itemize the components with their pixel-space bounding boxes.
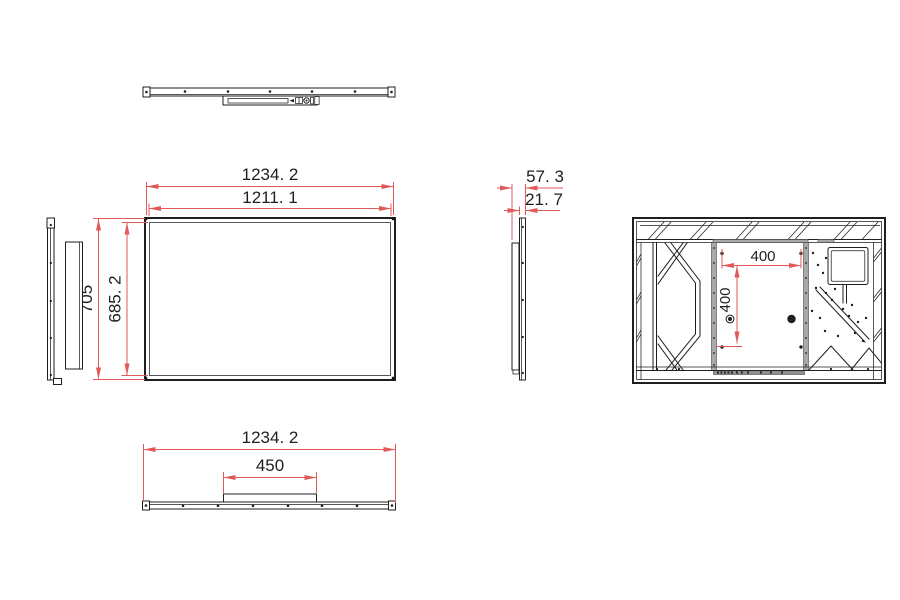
side-foot [513, 370, 519, 374]
front-height-dimensions: 705 685. 2 [77, 219, 148, 380]
handle-screw-right [787, 315, 795, 323]
bottom-bracket [224, 494, 317, 502]
left-side-view [47, 218, 83, 385]
rear-view: 400 400 [633, 218, 885, 383]
dim-vesa-height: 400 [717, 287, 734, 312]
dim-vesa-width: 400 [750, 248, 775, 265]
drawing-canvas: 1234. 2 1211. 1 705 685. 2 [0, 0, 900, 600]
dim-side-panel-thickness: 21. 7 [525, 190, 563, 209]
dim-side-depth-total: 57. 3 [526, 167, 564, 186]
dim-bottom-bracket-width: 450 [256, 456, 284, 475]
bottom-view [143, 494, 396, 510]
bottom-connector-strip [714, 371, 805, 375]
front-width-dimensions: 1234. 2 1211. 1 [147, 165, 394, 216]
dim-front-width-inner: 1211. 1 [242, 188, 297, 207]
right-side-view [512, 218, 526, 380]
power-box [828, 248, 868, 285]
bottom-dimensions: 1234. 2 450 [144, 428, 396, 503]
left-side-back-box [66, 242, 83, 369]
technical-drawing-page: 1234. 2 1211. 1 705 685. 2 [0, 0, 900, 600]
dim-front-width-outer: 1234. 2 [242, 165, 299, 184]
side-depth-dimensions: 57. 3 21. 7 [497, 167, 564, 240]
dim-bottom-width: 1234. 2 [242, 428, 299, 447]
front-panel-outline [145, 218, 395, 380]
side-back-box [512, 243, 519, 370]
handle-screw-left [726, 315, 734, 323]
left-side-foot [54, 379, 62, 385]
top-view [143, 87, 395, 105]
front-view [144, 217, 395, 380]
top-connector-recess [228, 99, 288, 104]
dim-front-height-inner: 685. 2 [106, 275, 125, 322]
